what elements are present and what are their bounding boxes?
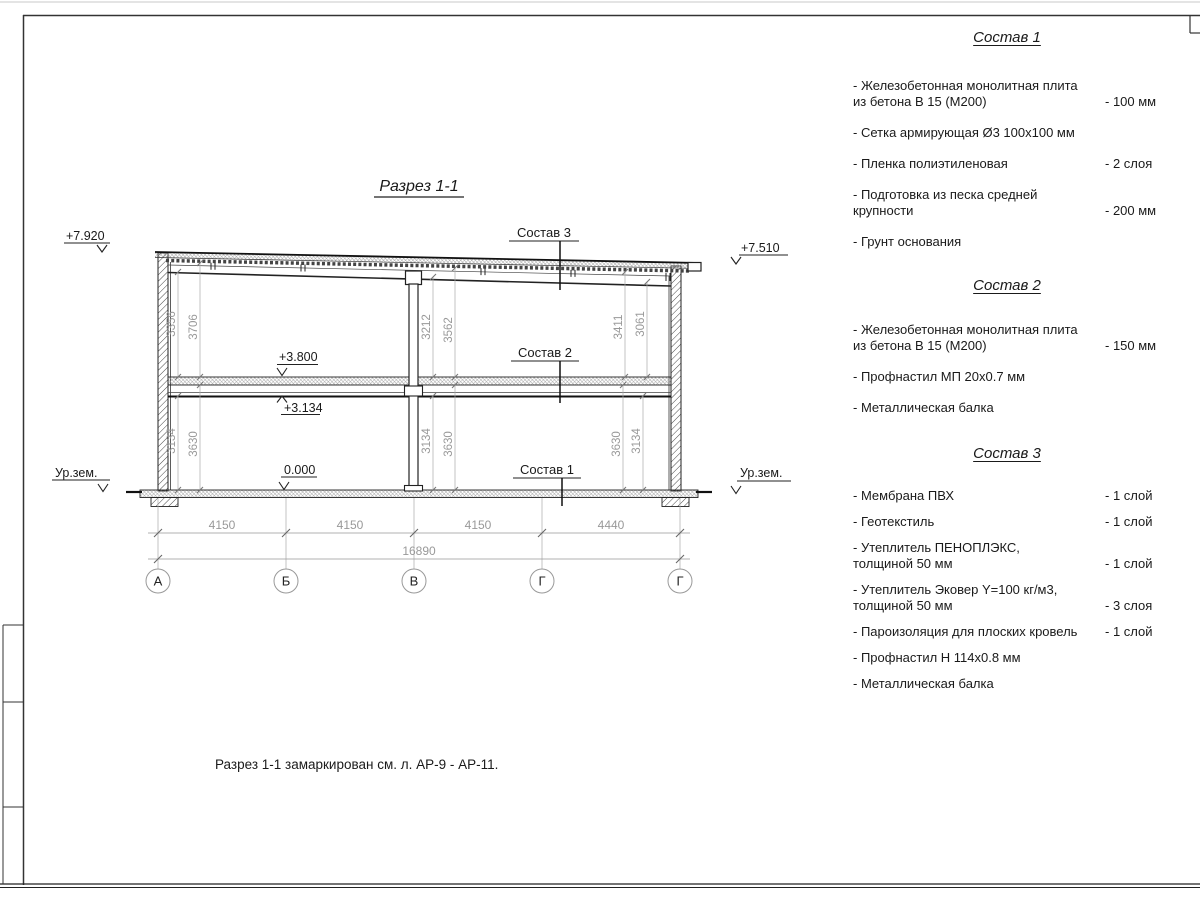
material-name: Профнастил Н 114х0.8 мм — [853, 650, 1105, 666]
svg-text:3562: 3562 — [443, 317, 455, 343]
material-value: - 200 мм — [1105, 203, 1169, 219]
ground-level-label: Ур.зем. — [740, 466, 782, 480]
material-item: Сетка армирующая Ø3 100х100 мм — [853, 125, 1169, 141]
material-name: Геотекстиль — [853, 514, 1105, 530]
material-value: - 1 слой — [1105, 488, 1169, 504]
dim-labels-upper: 3356 3706 3212 3562 3411 3061 — [166, 311, 647, 343]
dim-labels-lower: 3134 3630 3134 3630 3630 3134 — [166, 428, 643, 457]
svg-text:3061: 3061 — [635, 311, 647, 337]
svg-text:3212: 3212 — [421, 314, 433, 340]
material-name: Пароизоляция для плоских кровель — [853, 624, 1105, 640]
svg-text:3134: 3134 — [631, 428, 643, 454]
roof-structure — [155, 252, 701, 286]
material-item: Геотекстиль - 1 слой — [853, 514, 1169, 530]
leader-sostav-3: Состав 3 — [509, 225, 579, 290]
dim-chain: 4150 4150 4150 4440 16890 — [148, 498, 690, 569]
material-name: Металлическая балка — [853, 400, 1105, 416]
leader-label: Состав 1 — [520, 462, 574, 477]
material-item: Грунт основания — [853, 234, 1169, 250]
ground-slab — [126, 490, 712, 507]
material-name: Утеплитель ПЕНОПЛЭКС, толщиной 50 мм — [853, 540, 1105, 572]
material-item: Железобетонная монолитная плита из бетон… — [853, 78, 1169, 110]
svg-text:3134: 3134 — [166, 428, 178, 454]
axis-label: В — [410, 574, 419, 589]
wall-axis-a — [158, 253, 171, 491]
material-item: Металлическая балка — [853, 400, 1169, 416]
drawing-sheet: Разрез 1-1 — [0, 0, 1200, 900]
svg-text:3356: 3356 — [166, 311, 178, 337]
material-value: - 3 слоя — [1105, 598, 1169, 614]
svg-text:4440: 4440 — [598, 518, 625, 532]
material-name: Железобетонная монолитная плита из бетон… — [853, 322, 1105, 354]
svg-text:4150: 4150 — [465, 518, 492, 532]
axis-label: Г — [538, 574, 545, 589]
material-item: Профнастил МП 20х0.7 мм — [853, 369, 1169, 385]
material-item: Железобетонная монолитная плита из бетон… — [853, 322, 1169, 354]
svg-text:4150: 4150 — [209, 518, 236, 532]
elevation-floor: +3.800 — [277, 350, 318, 376]
material-item: Мембрана ПВХ - 1 слой — [853, 488, 1169, 504]
svg-text:3630: 3630 — [188, 431, 200, 457]
svg-text:4150: 4150 — [337, 518, 364, 532]
material-name: Мембрана ПВХ — [853, 488, 1105, 504]
svg-text:3630: 3630 — [611, 431, 623, 457]
material-item: Утеплитель ПЕНОПЛЭКС, толщиной 50 мм - 1… — [853, 540, 1169, 572]
reference-note: Разрез 1-1 замаркирован см. л. АР-9 - АР… — [215, 757, 498, 772]
elevation-label: +3.134 — [284, 401, 323, 415]
section-title: Состав 2 — [845, 276, 1169, 296]
leader-sostav-1: Состав 1 — [513, 462, 581, 506]
material-item: Пароизоляция для плоских кровель - 1 сло… — [853, 624, 1169, 640]
svg-text:3411: 3411 — [613, 315, 625, 340]
svg-text:3134: 3134 — [421, 428, 433, 454]
material-name: Пленка полиэтиленовая — [853, 156, 1105, 172]
material-item: Подготовка из песка средней крупности - … — [853, 187, 1169, 219]
material-value: - 1 слой — [1105, 556, 1169, 572]
svg-text:3706: 3706 — [188, 314, 200, 340]
material-item: Металлическая балка — [853, 676, 1169, 692]
axis-bubbles: А Б В Г Г — [146, 569, 692, 593]
elevation-label: +3.800 — [279, 350, 318, 364]
material-name: Железобетонная монолитная плита из бетон… — [853, 78, 1105, 110]
svg-text:3630: 3630 — [443, 431, 455, 457]
axis-label: Г — [676, 574, 683, 589]
material-item: Пленка полиэтиленовая - 2 слоя — [853, 156, 1169, 172]
section-title: Состав 1 — [845, 28, 1169, 48]
ground-level-right: Ур.зем. — [731, 466, 791, 494]
material-name: Подготовка из песка средней крупности — [853, 187, 1105, 219]
leader-sostav-2: Состав 2 — [511, 345, 579, 403]
drawing-title: Разрез 1-1 — [379, 178, 458, 195]
composition-section-1: Состав 1 Железобетонная монолитная плита… — [845, 28, 1169, 265]
ground-level-left: Ур.зем. — [52, 466, 110, 492]
axis-label: Б — [282, 574, 291, 589]
composition-section-2: Состав 2 Железобетонная монолитная плита… — [845, 276, 1169, 431]
material-value: - 100 мм — [1105, 94, 1169, 110]
elevation-zero: 0.000 — [279, 463, 317, 490]
elevation-roof-right: +7.510 — [731, 241, 788, 264]
elevation-roof-left: +7.920 — [64, 229, 110, 252]
elevation-label: +7.510 — [741, 241, 780, 255]
material-value: - 2 слоя — [1105, 156, 1169, 172]
material-item: Профнастил Н 114х0.8 мм — [853, 650, 1169, 666]
material-name: Утеплитель Эковер Y=100 кг/м3, толщиной … — [853, 582, 1105, 614]
material-name: Сетка армирующая Ø3 100х100 мм — [853, 125, 1105, 141]
elevation-label: +7.920 — [66, 229, 105, 243]
composition-section-3: Состав 3 Мембрана ПВХ - 1 слой Геотексти… — [845, 444, 1169, 702]
material-value: - 1 слой — [1105, 624, 1169, 640]
elevation-label: 0.000 — [284, 463, 315, 477]
ground-level-label: Ур.зем. — [55, 466, 97, 480]
material-name: Металлическая балка — [853, 676, 1105, 692]
axis-label: А — [154, 574, 163, 589]
material-value: - 1 слой — [1105, 514, 1169, 530]
material-value: - 150 мм — [1105, 338, 1169, 354]
material-item: Утеплитель Эковер Y=100 кг/м3, толщиной … — [853, 582, 1169, 614]
material-name: Грунт основания — [853, 234, 1105, 250]
leader-label: Состав 3 — [517, 225, 571, 240]
svg-text:16890: 16890 — [402, 544, 436, 558]
elevation-beam: +3.134 — [277, 396, 323, 415]
section-title: Состав 3 — [845, 444, 1169, 464]
leader-label: Состав 2 — [518, 345, 572, 360]
material-name: Профнастил МП 20х0.7 мм — [853, 369, 1105, 385]
